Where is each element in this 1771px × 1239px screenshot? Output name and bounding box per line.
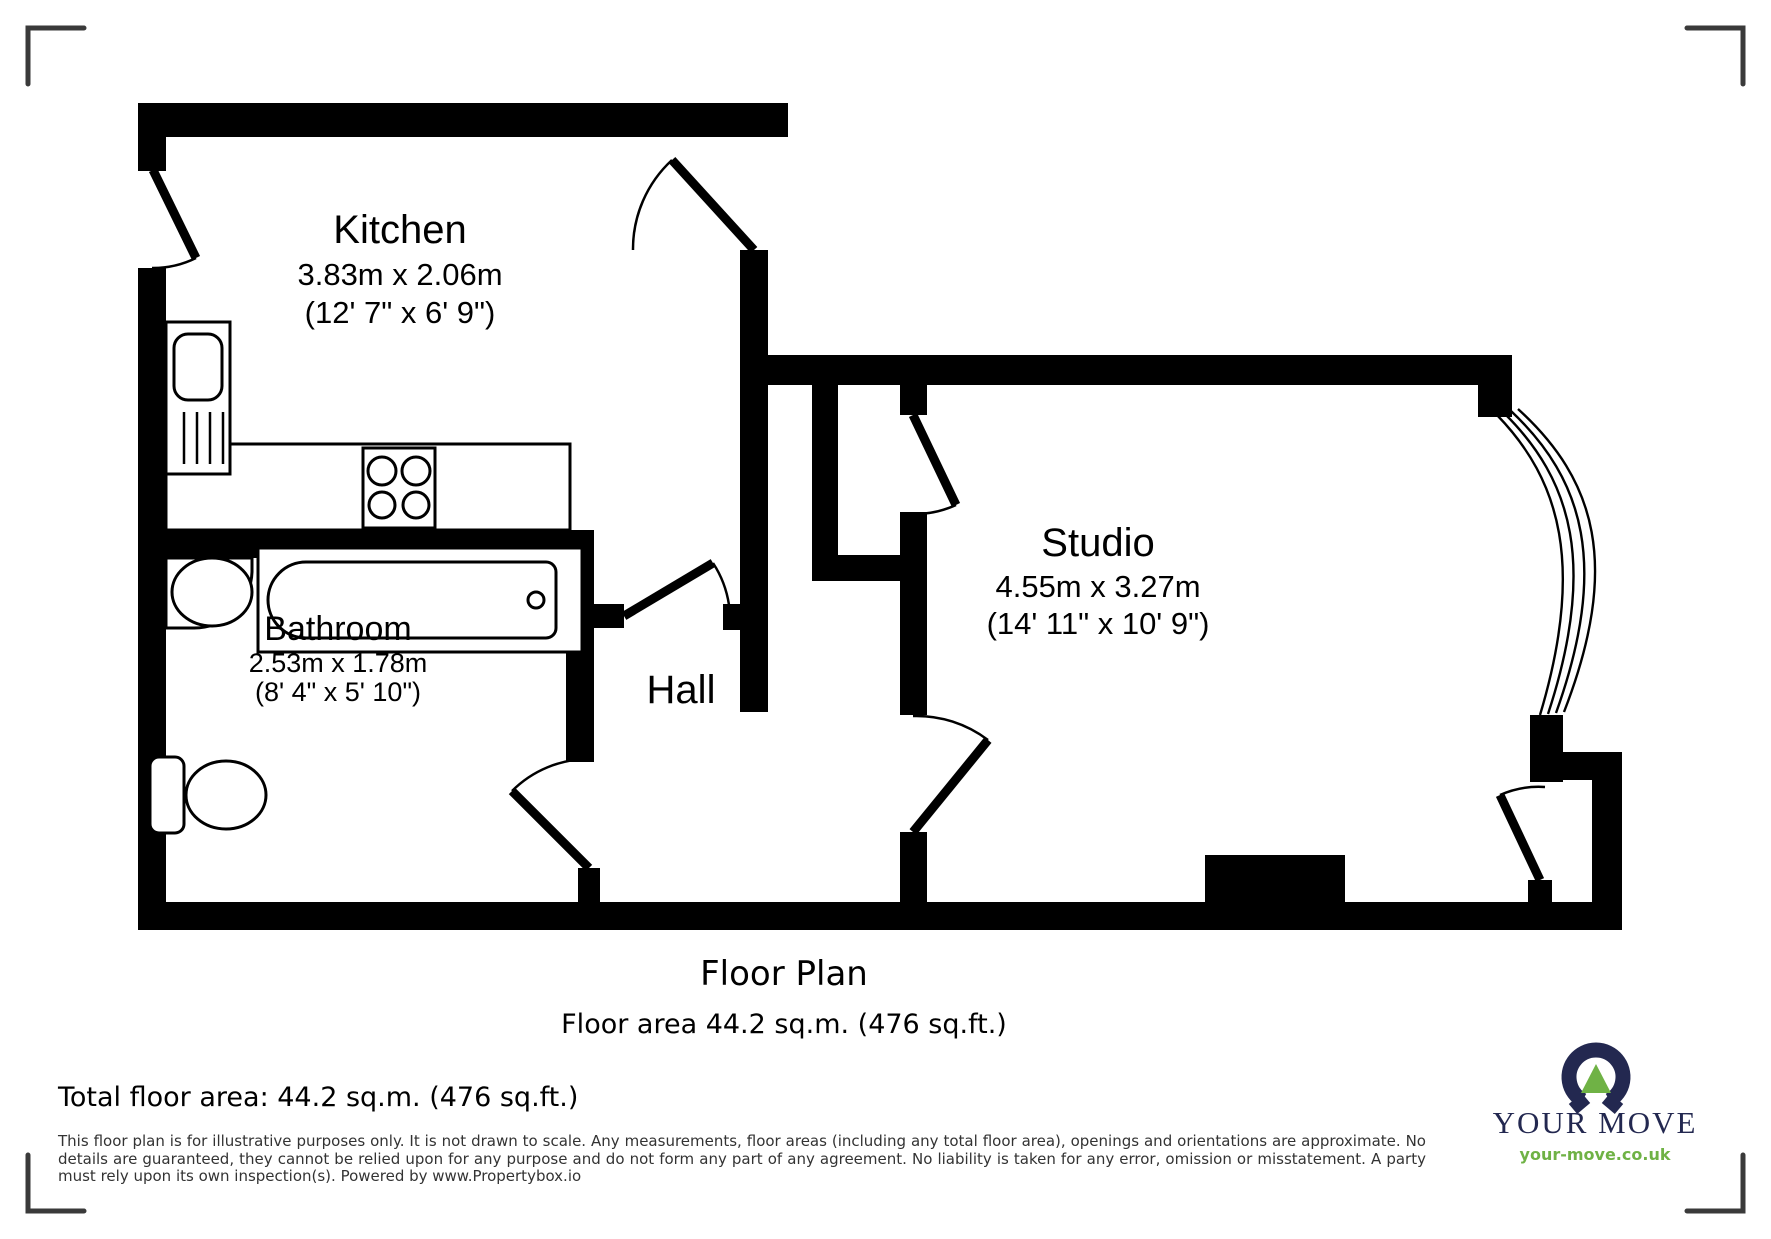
your-move-logo: YOUR MOVE your-move.co.uk <box>1490 1022 1750 1172</box>
plan-subtitle: Floor area 44.2 sq.m. (476 sq.ft.) <box>561 1009 1007 1040</box>
plan-title: Floor Plan <box>700 954 868 994</box>
bay-window-icon <box>1497 409 1595 715</box>
door-closet <box>913 415 956 514</box>
bathroom-label: Bathroom <box>264 610 411 648</box>
studio-label: Studio <box>1041 521 1154 565</box>
corner-bracket-top-right <box>1687 28 1743 84</box>
studio-dimensions-imperial: (14' 11" x 10' 9") <box>987 606 1210 641</box>
hall-label: Hall <box>647 668 716 712</box>
studio-dimensions: 4.55m x 3.27m <box>995 569 1200 604</box>
door-bathroom <box>512 759 589 868</box>
logo-brand-text: YOUR MOVE <box>1493 1105 1698 1140</box>
kitchen-dimensions: 3.83m x 2.06m <box>297 257 502 292</box>
kitchen-dimensions-imperial: (12' 7" x 6' 9") <box>305 295 496 330</box>
hob-icon <box>363 448 435 528</box>
kitchen-sink-icon <box>166 322 230 474</box>
door-kitchen-entrance <box>152 170 196 268</box>
corner-bracket-top-left <box>28 28 84 84</box>
green-triangle-icon <box>1581 1064 1611 1093</box>
basin-icon <box>166 558 252 628</box>
kitchen-label: Kitchen <box>333 208 466 252</box>
door-kitchen-hall <box>624 563 729 616</box>
fixtures-layer <box>150 322 582 833</box>
bathroom-dimensions: 2.53m x 1.78m <box>249 648 428 678</box>
toilet-icon <box>150 757 266 833</box>
disclaimer-text: This floor plan is for illustrative purp… <box>58 1133 1426 1186</box>
logo-website-text: your-move.co.uk <box>1520 1145 1671 1164</box>
bathroom-dimensions-imperial: (8' 4" x 5' 10") <box>255 677 421 707</box>
door-studio-entrance <box>1500 787 1545 880</box>
total-floor-area: Total floor area: 44.2 sq.m. (476 sq.ft.… <box>58 1082 578 1113</box>
door-hall-studio <box>913 716 988 832</box>
door-kitchen-topright <box>633 160 754 250</box>
your-move-arc-icon <box>1569 1050 1623 1109</box>
plan-title-block: Floor Plan Floor area 44.2 sq.m. (476 sq… <box>561 954 1007 1040</box>
